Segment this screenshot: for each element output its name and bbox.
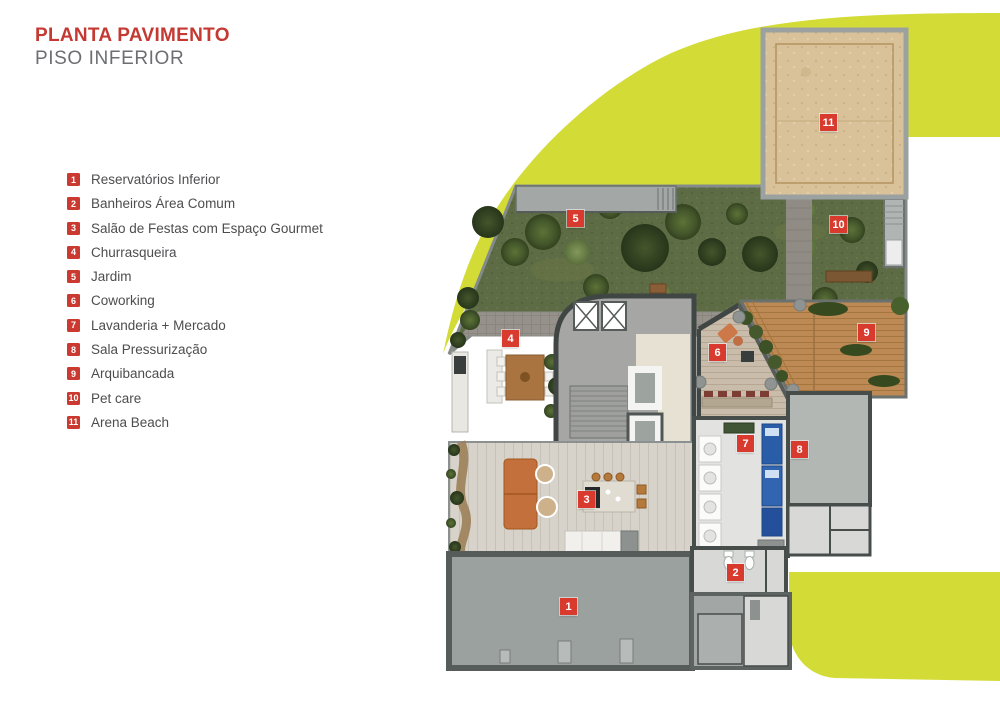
floorplan-graphic [0,0,1000,706]
garden-bench [650,284,666,293]
round-table [536,465,554,483]
floorplan-page: PLANTA PAVIMENTO PISO INFERIOR 1 Reserva… [0,0,1000,706]
vending-machine [762,508,782,536]
staircase [570,386,628,438]
plan-marker-7: 7 [737,435,754,452]
plan-marker-11: 11 [820,114,837,131]
plan-marker-6: 6 [709,344,726,361]
counter [565,531,622,552]
plan-marker-4: 4 [502,330,519,347]
garden-wall [516,186,676,212]
plan-marker-10: 10 [830,216,847,233]
plan-marker-9: 9 [858,324,875,341]
grill [454,356,466,374]
plan-marker-5: 5 [567,210,584,227]
plan-marker-2: 2 [727,564,744,581]
salao-festas-area [446,442,696,554]
utility-rooms [692,594,790,668]
pressurizacao-area [788,393,870,555]
plan-marker-1: 1 [560,598,577,615]
wood-planter [826,271,872,282]
folding-table [724,423,754,433]
round-table [537,497,557,517]
plan-marker-3: 3 [578,491,595,508]
toilet [745,557,754,570]
coworking-table [741,351,754,362]
plan-marker-8: 8 [791,441,808,458]
coworking-desks [702,398,772,407]
